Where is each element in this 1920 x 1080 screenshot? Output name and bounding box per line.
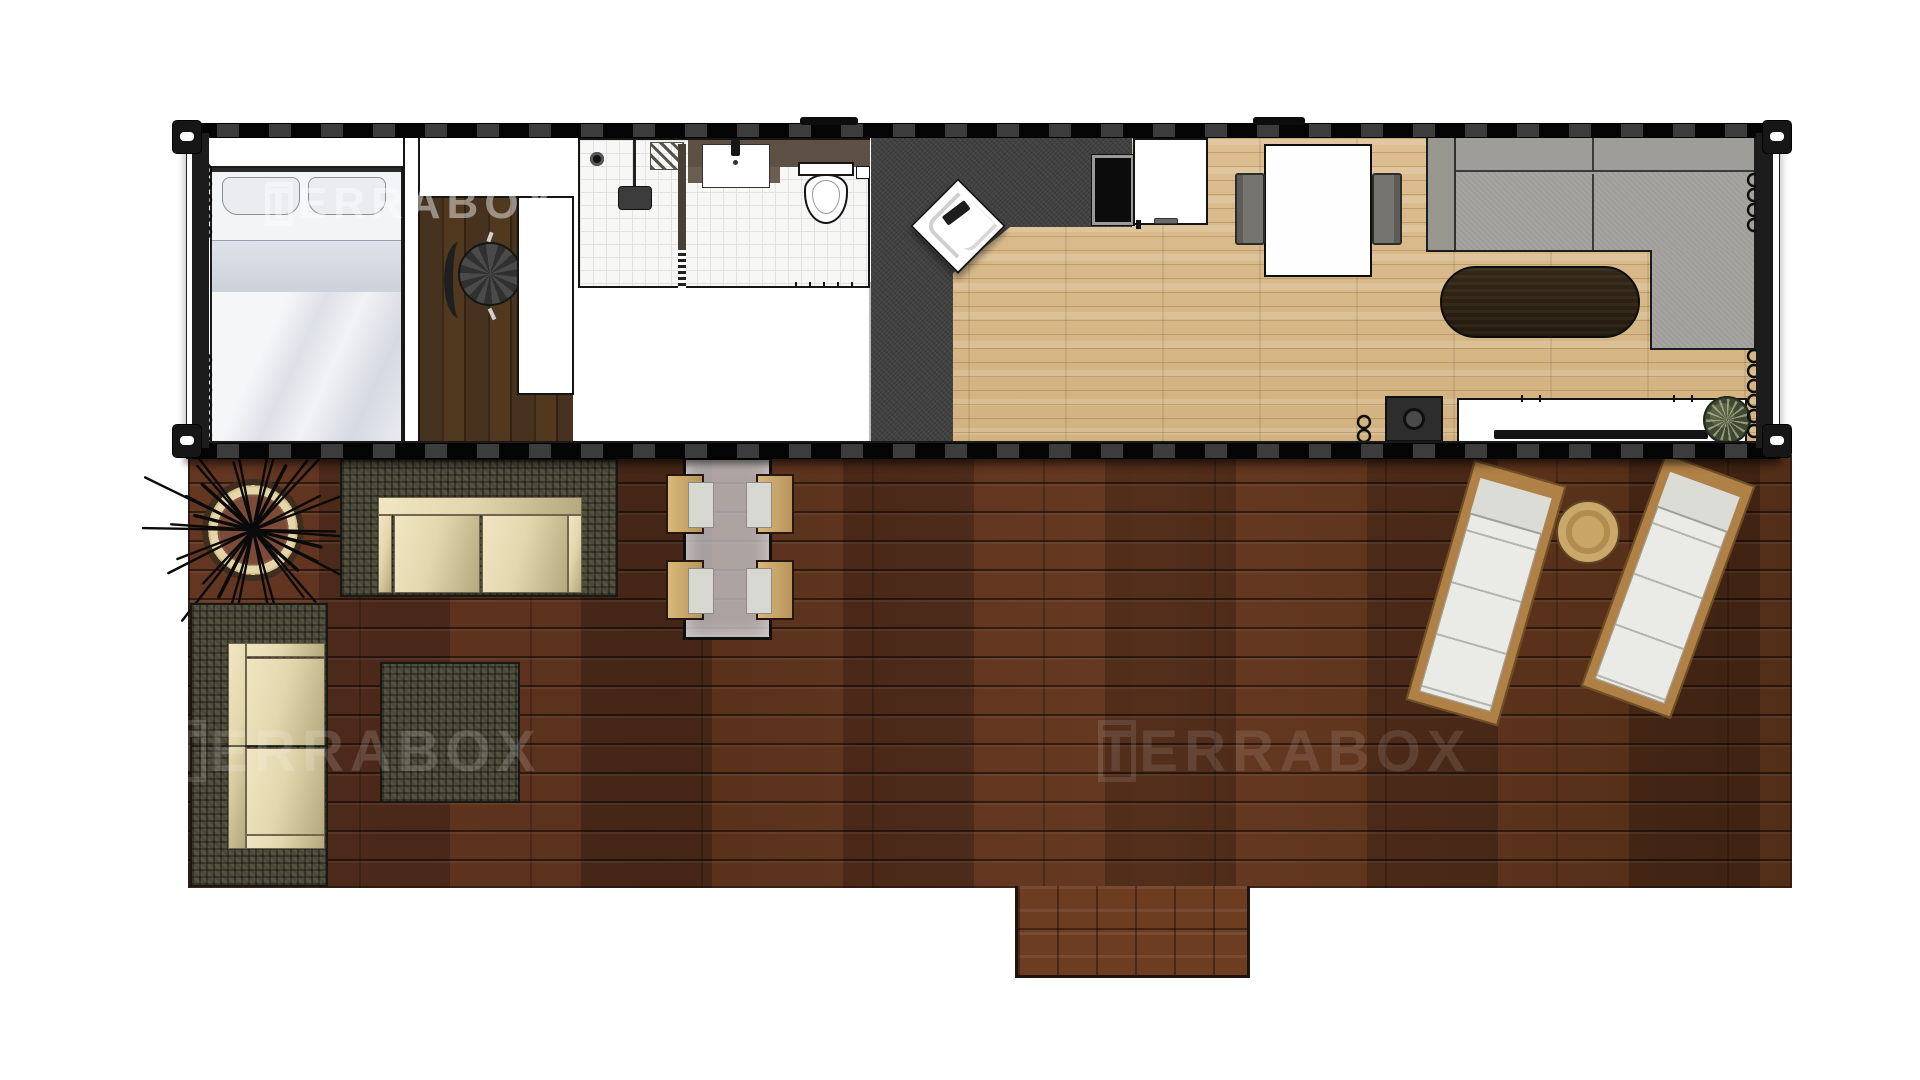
office-chair xyxy=(444,232,524,338)
counter-handle xyxy=(1154,218,1178,224)
chair-pad xyxy=(688,482,714,528)
sectional-chaise xyxy=(1650,250,1756,350)
container-left-wall xyxy=(192,133,209,448)
container-right-wall xyxy=(1756,133,1773,448)
shower-drain xyxy=(618,186,652,210)
door-ticks xyxy=(795,282,857,288)
speaker-cone-icon xyxy=(1403,408,1425,430)
corner-casting xyxy=(172,120,202,154)
chair-pad xyxy=(746,568,772,614)
oval-coffee-table xyxy=(1440,266,1640,338)
casting-notch xyxy=(1770,132,1784,141)
shower-stem xyxy=(633,140,636,192)
chair-pad xyxy=(746,482,772,528)
deck-chair xyxy=(756,474,794,534)
roof-tab xyxy=(800,117,858,125)
corner-casting xyxy=(1762,120,1792,154)
bathroom xyxy=(578,138,870,288)
outdoor-sofa-top xyxy=(340,458,618,597)
deck-chair xyxy=(666,560,704,620)
counter-latch xyxy=(1136,220,1141,229)
speaker xyxy=(1385,396,1443,442)
sofa-seat-split xyxy=(1592,174,1594,250)
watermark-text: TERRABOX xyxy=(168,718,541,785)
hallway-wall-line xyxy=(869,282,871,443)
chair-pad xyxy=(688,568,714,614)
deck-chair xyxy=(666,474,704,534)
decor-tick xyxy=(1673,395,1675,402)
headboard xyxy=(212,168,401,172)
shower-head-icon xyxy=(590,152,604,166)
sofa-armrest xyxy=(246,643,325,657)
decor-tick xyxy=(1691,395,1693,402)
sofa-back-split xyxy=(1592,138,1594,172)
black-appliance xyxy=(1092,155,1134,225)
curtain-coil-icon xyxy=(1356,414,1372,444)
plant-speckle xyxy=(1706,399,1748,441)
round-side-table xyxy=(1556,500,1620,564)
faucet-dot xyxy=(733,160,738,165)
container-top-frame xyxy=(186,123,1780,138)
sofa-armrest xyxy=(1428,138,1456,250)
duvet-fold xyxy=(212,240,401,292)
chair-seat xyxy=(458,242,522,306)
deck-chair xyxy=(756,560,794,620)
partition-ticks xyxy=(678,250,686,288)
sofa-seat-cushion xyxy=(482,515,568,593)
sofa-seat-cushion xyxy=(394,515,480,593)
sofa-armrest xyxy=(378,515,392,593)
decor-tick xyxy=(1521,395,1523,402)
dining-chair xyxy=(1372,173,1402,245)
chair-caster xyxy=(486,232,493,243)
watermark-text: TERRABOX xyxy=(1098,718,1471,785)
roof-tab xyxy=(1253,117,1305,125)
dining-table xyxy=(1264,144,1372,277)
corner-casting xyxy=(1762,424,1792,458)
casting-notch xyxy=(180,132,194,141)
toilet-paper-holder xyxy=(856,166,870,179)
sofa-back-cushion xyxy=(378,497,582,515)
faucet-icon xyxy=(731,140,740,156)
sofa-armrest xyxy=(568,515,582,593)
casting-notch xyxy=(180,436,194,445)
container-bottom-frame xyxy=(186,443,1780,459)
duvet xyxy=(212,292,401,441)
sectional-sofa xyxy=(1426,136,1756,252)
chair-caster xyxy=(488,308,497,321)
toilet-bowl xyxy=(804,174,848,224)
sofa-armrest xyxy=(246,835,325,849)
corner-casting xyxy=(172,424,202,458)
casting-notch xyxy=(1770,436,1784,445)
deck-step xyxy=(1015,886,1250,978)
tv xyxy=(1494,430,1708,439)
toilet-seat-line xyxy=(812,180,840,214)
kitchen-counter xyxy=(1133,138,1208,225)
dining-chair xyxy=(1235,173,1265,245)
watermark-text: TERRABOX xyxy=(265,179,560,229)
step-seam xyxy=(1018,928,1247,930)
potted-plant xyxy=(1703,396,1751,444)
sofa-back-band xyxy=(1456,138,1754,172)
decor-tick xyxy=(1539,395,1541,402)
floor-plan: TERRABOX TERRABOX TERRABOX xyxy=(0,0,1920,1080)
